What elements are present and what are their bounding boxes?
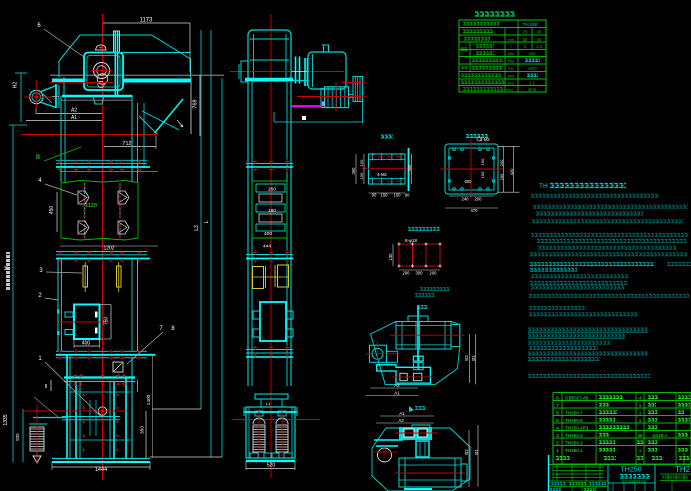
svg-text:835: 835 bbox=[15, 433, 20, 441]
svg-text:150: 150 bbox=[381, 193, 389, 198]
svg-text:300: 300 bbox=[416, 271, 424, 276]
svg-text:450: 450 bbox=[529, 51, 537, 56]
svg-text:36: 36 bbox=[637, 433, 643, 438]
svg-text:769: 769 bbox=[193, 99, 199, 108]
svg-text:40: 40 bbox=[537, 37, 542, 42]
svg-text:2: 2 bbox=[556, 440, 559, 446]
svg-text:TH250.7: TH250.7 bbox=[565, 410, 583, 415]
svg-text:B2: B2 bbox=[464, 449, 469, 455]
svg-text:MM: MM bbox=[508, 74, 515, 79]
svg-text:260: 260 bbox=[268, 187, 276, 193]
svg-text:450: 450 bbox=[49, 206, 55, 215]
svg-text:TH250.3: TH250.3 bbox=[565, 433, 583, 438]
svg-text:8-φ18: 8-φ18 bbox=[405, 238, 417, 243]
svg-text:A2: A2 bbox=[394, 383, 400, 388]
svg-text:150: 150 bbox=[359, 159, 364, 166]
svg-text:1: 1 bbox=[639, 403, 642, 408]
svg-text:L3: L3 bbox=[194, 225, 200, 231]
svg-text:350: 350 bbox=[351, 167, 356, 175]
svg-text:180: 180 bbox=[268, 208, 276, 214]
svg-text:TH: TH bbox=[539, 183, 548, 190]
svg-text:1: 1 bbox=[639, 410, 642, 415]
svg-text:Q235-A: Q235-A bbox=[652, 433, 667, 438]
svg-text:TH250.4(5): TH250.4(5) bbox=[565, 425, 589, 430]
svg-text:350: 350 bbox=[140, 426, 146, 434]
svg-text:B2: B2 bbox=[464, 355, 469, 361]
svg-text:r/min: r/min bbox=[505, 88, 513, 92]
svg-text:B1: B1 bbox=[471, 355, 476, 361]
svg-text:A2: A2 bbox=[71, 108, 77, 114]
svg-text:1: 1 bbox=[639, 448, 642, 453]
svg-text:A2: A2 bbox=[398, 418, 404, 423]
svg-text:MM: MM bbox=[508, 51, 515, 56]
svg-text:1-M2: 1-M2 bbox=[480, 137, 490, 142]
svg-text:1: 1 bbox=[556, 448, 559, 454]
svg-text:I-I: I-I bbox=[266, 402, 270, 407]
svg-text:KN: KN bbox=[508, 66, 514, 71]
svg-text:1400: 1400 bbox=[146, 394, 152, 405]
svg-text:A1: A1 bbox=[71, 115, 77, 121]
svg-text:4: 4 bbox=[556, 425, 559, 431]
svg-text:TH 250: TH 250 bbox=[523, 22, 538, 27]
svg-text:400: 400 bbox=[264, 231, 272, 237]
svg-text:1444: 1444 bbox=[95, 467, 107, 473]
svg-text:360: 360 bbox=[407, 164, 412, 172]
svg-text:40: 40 bbox=[537, 29, 542, 34]
svg-text:A1: A1 bbox=[394, 391, 400, 396]
svg-text:420: 420 bbox=[509, 168, 514, 175]
svg-text:30: 30 bbox=[523, 37, 528, 42]
svg-text:150: 150 bbox=[480, 158, 485, 165]
svg-text:200: 200 bbox=[499, 173, 504, 180]
svg-text:240: 240 bbox=[462, 197, 470, 202]
svg-text:200: 200 bbox=[499, 159, 504, 166]
svg-text:1202: 1202 bbox=[103, 246, 114, 252]
svg-text:130: 130 bbox=[388, 253, 393, 261]
svg-text:TH2: TH2 bbox=[675, 465, 691, 474]
svg-text:90: 90 bbox=[405, 193, 410, 198]
svg-text:200: 200 bbox=[430, 271, 438, 276]
svg-text:1.3: 1.3 bbox=[536, 44, 542, 49]
svg-text:GB5027-86: GB5027-86 bbox=[565, 395, 589, 400]
svg-text:444: 444 bbox=[263, 244, 271, 250]
svg-text:1: 1 bbox=[639, 418, 642, 423]
svg-text:TH250.2: TH250.2 bbox=[565, 440, 583, 445]
svg-text:B1: B1 bbox=[474, 449, 479, 455]
svg-text:400: 400 bbox=[82, 341, 91, 347]
svg-text:A1: A1 bbox=[399, 411, 405, 416]
svg-text:3: 3 bbox=[556, 433, 559, 439]
svg-text:150: 150 bbox=[359, 172, 364, 179]
svg-text:B: B bbox=[36, 155, 40, 161]
svg-text:6: 6 bbox=[556, 410, 559, 416]
svg-text:712: 712 bbox=[122, 141, 131, 147]
svg-text:8: 8 bbox=[556, 395, 559, 401]
svg-text:1120: 1120 bbox=[85, 203, 97, 209]
svg-text:200: 200 bbox=[475, 197, 483, 202]
svg-text:470: 470 bbox=[471, 208, 479, 213]
svg-text:TH250.1: TH250.1 bbox=[565, 448, 583, 453]
svg-text:4: 4 bbox=[639, 395, 642, 400]
svg-text:≥320: ≥320 bbox=[527, 66, 537, 71]
svg-text:H2: H2 bbox=[13, 82, 19, 89]
svg-text:MM: MM bbox=[508, 59, 515, 64]
svg-text:90: 90 bbox=[372, 193, 377, 198]
svg-text:L: L bbox=[204, 220, 210, 223]
svg-text:520: 520 bbox=[267, 463, 276, 469]
svg-text:TH250.6: TH250.6 bbox=[565, 418, 583, 423]
svg-text:25: 25 bbox=[523, 29, 528, 34]
svg-text:150: 150 bbox=[480, 171, 485, 178]
svg-text:48.5: 48.5 bbox=[528, 87, 537, 92]
svg-text:1173: 1173 bbox=[140, 18, 154, 24]
svg-text:1335: 1335 bbox=[3, 414, 9, 425]
svg-text:M/S: M/S bbox=[508, 82, 515, 86]
svg-text:5: 5 bbox=[556, 418, 559, 424]
svg-text:II: II bbox=[45, 384, 48, 390]
svg-text:750: 750 bbox=[104, 317, 110, 326]
svg-text:600: 600 bbox=[465, 179, 473, 184]
svg-text:1.1: 1.1 bbox=[529, 81, 535, 86]
svg-text:7: 7 bbox=[556, 403, 559, 409]
svg-text:l: l bbox=[511, 44, 512, 49]
svg-text:mm: mm bbox=[508, 37, 515, 42]
svg-text:150: 150 bbox=[394, 193, 402, 198]
svg-text:TH250: TH250 bbox=[620, 467, 641, 474]
svg-text:200: 200 bbox=[403, 271, 411, 276]
svg-text:4-M2: 4-M2 bbox=[377, 172, 387, 177]
